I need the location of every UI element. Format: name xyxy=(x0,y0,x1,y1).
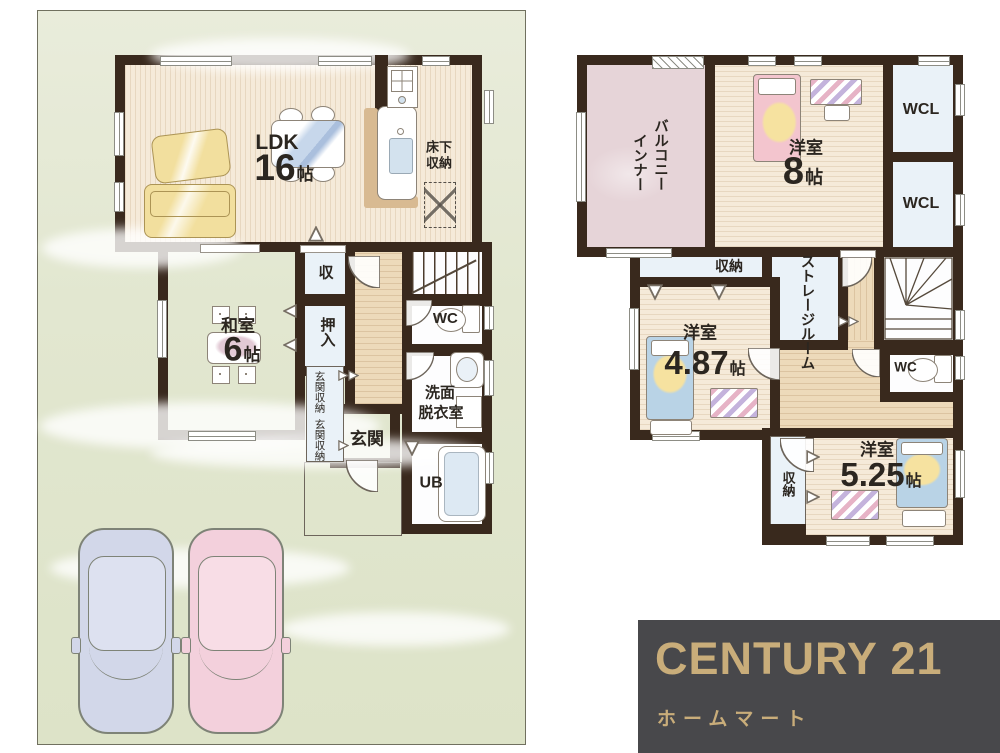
door-fold-icon xyxy=(348,370,359,381)
senmen-label-line2: 脱衣室 xyxy=(418,402,463,423)
car-windshield xyxy=(199,647,273,680)
desk xyxy=(831,490,879,520)
bedroom487-size: 4.87帖 xyxy=(664,344,745,382)
door-fold-icon xyxy=(647,283,663,301)
window xyxy=(794,56,822,66)
closet-525-wall xyxy=(770,524,806,535)
window xyxy=(114,182,124,212)
door-arc-icon xyxy=(748,348,780,380)
bed-pillow xyxy=(901,442,943,456)
window xyxy=(955,84,965,116)
oshiire-label: 押入 xyxy=(317,317,338,347)
window xyxy=(157,300,167,358)
wc-2f-label: WC xyxy=(894,361,902,376)
window xyxy=(422,56,450,66)
door-arc-icon xyxy=(406,352,434,380)
door-fold-icon xyxy=(711,283,727,301)
car-windshield xyxy=(89,647,163,680)
desk-chair xyxy=(824,105,850,121)
washitsu-size-unit: 帖 xyxy=(243,341,260,366)
wc-1f-label: WC xyxy=(433,311,441,327)
window xyxy=(955,356,965,380)
car-mirror xyxy=(71,637,81,654)
car-mirror xyxy=(171,637,181,654)
bathroom-sink xyxy=(450,352,484,388)
brand-name: CENTURY 21 xyxy=(655,633,943,685)
window xyxy=(318,56,372,66)
door-fold-icon xyxy=(848,316,859,327)
car-roof xyxy=(198,556,275,651)
outer-wall-segment xyxy=(953,390,963,438)
balcony-railing-hatch xyxy=(652,56,704,69)
window xyxy=(114,112,124,156)
bedroom487-size-unit: 帖 xyxy=(730,355,746,379)
washitsu-size-num: 6 xyxy=(224,331,243,370)
yukashita-label-line2: 収納 xyxy=(426,153,452,172)
bedroom525-size-unit: 帖 xyxy=(906,467,922,491)
century21-logo: CENTURY 21 ホームマート xyxy=(638,620,1000,753)
window xyxy=(160,56,232,66)
living-table xyxy=(150,128,231,185)
door-arc-icon xyxy=(852,349,880,377)
bed-shelf xyxy=(902,510,946,527)
floor-plan-page: LDK 16帖 床下 収納 和室 6帖 収 押入 玄関収納 玄関収納 玄関 WC… xyxy=(0,0,1000,753)
brand-subtitle: ホームマート xyxy=(657,704,812,731)
cooktop-dial xyxy=(398,96,406,104)
closet-525-label: 収納 xyxy=(779,471,798,497)
wcl-lower-label: WCL xyxy=(903,195,939,213)
bedroom8-size: 8帖 xyxy=(783,151,823,194)
door-fold-icon xyxy=(283,338,297,352)
sliding-door-gap xyxy=(200,244,260,253)
door-gap xyxy=(300,245,346,253)
floor-hatch-box xyxy=(424,182,456,228)
window xyxy=(886,536,934,546)
ub-label: UB xyxy=(420,474,429,491)
window xyxy=(748,56,776,66)
stairs-fan xyxy=(884,257,953,340)
door-fold-icon xyxy=(308,226,324,242)
car-mirror xyxy=(181,637,191,654)
door-arc-icon xyxy=(348,256,380,288)
car-roof xyxy=(88,556,165,651)
cooktop-burners xyxy=(391,70,413,92)
door-fold-icon xyxy=(338,440,349,451)
closet-shu-label: 収 xyxy=(318,262,333,283)
car-mirror xyxy=(281,637,291,654)
front-door-arc-icon xyxy=(346,460,378,492)
desk xyxy=(710,388,758,418)
bed-shelf xyxy=(650,420,692,435)
kitchen-sink xyxy=(389,138,413,174)
ldk-size-unit: 帖 xyxy=(297,160,314,185)
bedroom8-size-num: 8 xyxy=(783,151,804,194)
door-fold-icon xyxy=(404,440,420,456)
window xyxy=(484,360,494,396)
window xyxy=(918,56,950,66)
senmen-label-line1: 洗面 xyxy=(425,382,455,403)
sofa xyxy=(144,184,236,238)
bedroom525-size: 5.25帖 xyxy=(840,456,921,494)
window xyxy=(826,536,870,546)
inner-balcony-col2: バルコニー xyxy=(650,119,671,192)
car-blue xyxy=(78,528,174,734)
ldk-size-num: 16 xyxy=(254,147,295,189)
door-fold-icon xyxy=(283,304,297,318)
window xyxy=(629,308,639,370)
genkan-label: 玄関 xyxy=(350,425,384,450)
bedroom487-size-num: 4.87 xyxy=(664,344,728,382)
door-arc-icon xyxy=(842,257,872,287)
bathtub xyxy=(438,446,486,522)
door-fold-icon xyxy=(806,490,820,504)
door-fold-icon xyxy=(806,450,820,464)
car-pink xyxy=(188,528,284,734)
window xyxy=(955,310,965,340)
bedroom8-size-unit: 帖 xyxy=(805,164,823,190)
desk xyxy=(810,79,862,105)
window xyxy=(484,90,494,124)
window xyxy=(188,431,256,441)
kitchen-counter-side xyxy=(364,108,378,208)
bed-pillow xyxy=(758,78,797,95)
genkan-storage-label-lower: 玄関収納 xyxy=(313,419,328,461)
window xyxy=(606,248,672,258)
inner-balcony-col1: インナー xyxy=(629,133,650,191)
bedroom487-label: 洋室 xyxy=(683,319,717,344)
closet-top-label: 収納 xyxy=(715,256,743,276)
washitsu-size: 6帖 xyxy=(224,331,261,370)
storage-room-label: ストレージルーム xyxy=(798,254,815,336)
inner-balcony-label: インナーバルコニー xyxy=(629,119,671,196)
door-arc-icon xyxy=(406,300,432,326)
genkan-storage-label-upper: 玄関収納 xyxy=(313,371,328,413)
window xyxy=(955,450,965,498)
lot-cloud xyxy=(150,38,410,72)
ldk-size: 16帖 xyxy=(254,147,313,189)
lot-cloud xyxy=(280,612,510,646)
wcl-upper-label: WCL xyxy=(903,101,939,119)
kitchen-faucet xyxy=(397,128,404,135)
bedroom525-size-num: 5.25 xyxy=(840,456,904,494)
window xyxy=(484,306,494,330)
window xyxy=(955,194,965,226)
window xyxy=(576,112,586,202)
